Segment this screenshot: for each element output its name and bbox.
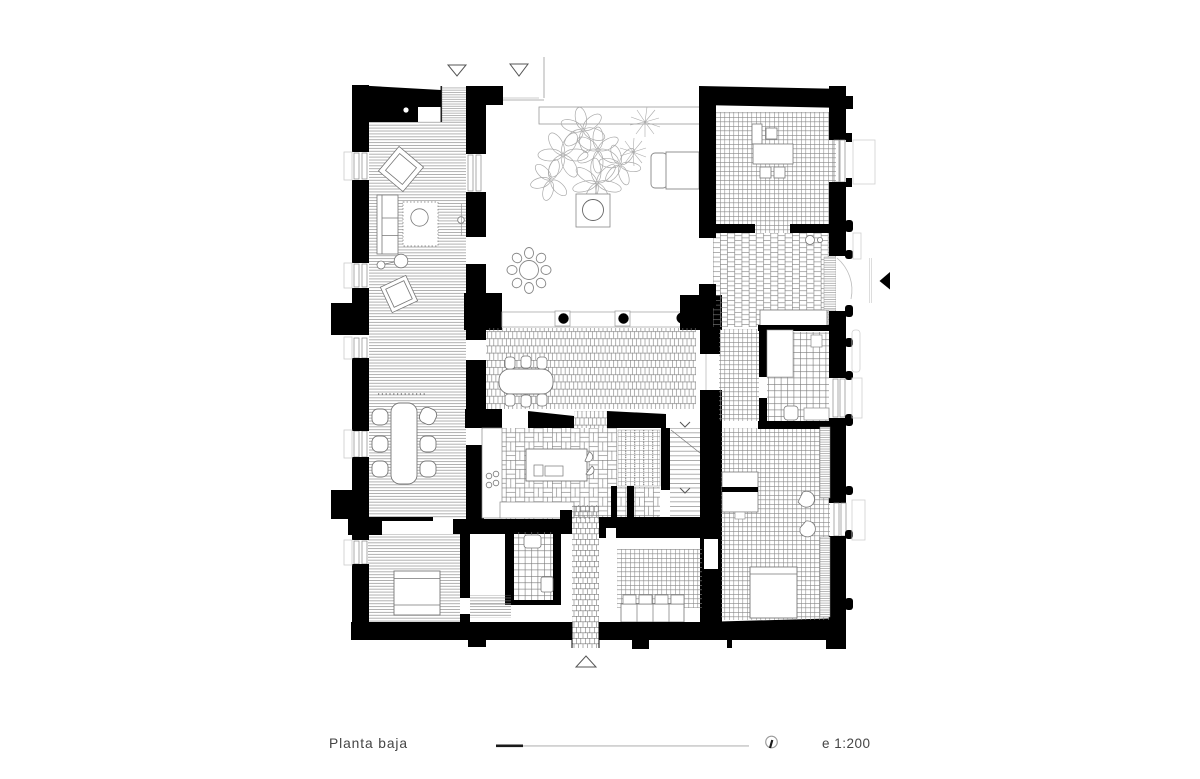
svg-text:e 1:200: e 1:200 [822,736,871,751]
svg-text:Planta baja: Planta baja [329,736,408,751]
